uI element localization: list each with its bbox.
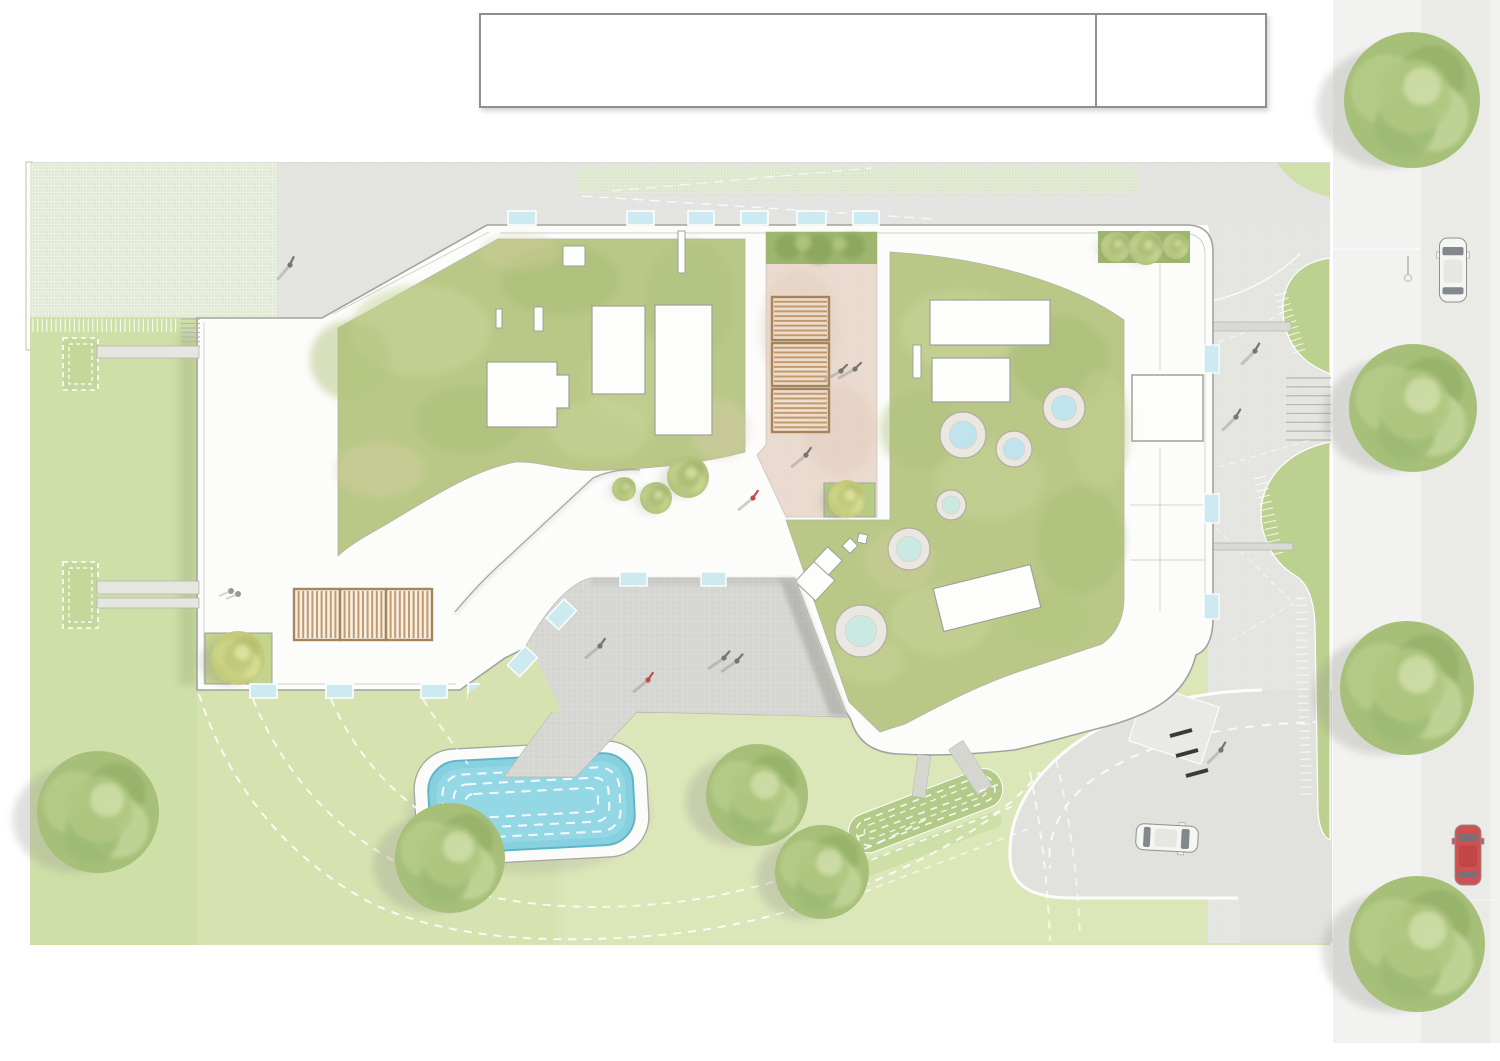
skylight (250, 684, 277, 698)
planter-bridge (97, 598, 199, 608)
skylight (326, 684, 353, 698)
skylight (1204, 345, 1219, 373)
lawn-planter-bed (63, 338, 98, 390)
upper-walk-green-band-pavers (578, 166, 1138, 194)
roof-planting-texture (1035, 485, 1125, 595)
hedge-tree (1144, 240, 1154, 250)
car-red-street (1452, 825, 1484, 885)
hedge-tree (1174, 240, 1181, 247)
hedge-shrub (795, 235, 811, 251)
title-block-main-panel (481, 15, 1097, 106)
hedge-shrub (833, 237, 847, 251)
deck-tree (654, 490, 663, 499)
round-skylight (942, 496, 960, 514)
skylight (627, 211, 654, 225)
title-block (479, 13, 1267, 108)
planter-bridge (97, 346, 199, 358)
scene-root (13, 0, 1500, 1043)
hedge-tree (1114, 240, 1122, 248)
roof-planting-texture (550, 400, 650, 460)
roof-planting-texture (310, 320, 390, 400)
pergola (772, 389, 829, 432)
planter-shrub (845, 490, 856, 501)
skylight (853, 211, 879, 225)
rooftop-volume (932, 358, 1010, 402)
round-skylight (1003, 438, 1025, 460)
lawn-tree (443, 832, 474, 863)
rooftop-volume (930, 300, 1050, 345)
planter-shrub (234, 645, 249, 660)
roof-planting-texture (335, 442, 425, 498)
round-skylight (949, 421, 977, 449)
deck-tree (685, 467, 697, 479)
car-white-street (1437, 238, 1470, 302)
site-plan (0, 0, 1500, 1061)
lawn-tree (816, 849, 842, 875)
round-skylight (896, 536, 921, 561)
skylight (797, 211, 826, 225)
roof-planting-texture (1070, 370, 1130, 490)
pergola (772, 343, 829, 386)
lawn-tree (90, 783, 124, 817)
roof-vent (496, 309, 502, 328)
roof-planting-texture (480, 234, 560, 270)
car-white-driveway (1135, 820, 1199, 855)
street-tree (1398, 656, 1436, 694)
roof-vent (913, 345, 921, 378)
skylight (701, 572, 726, 586)
skylight-box-tilted (857, 533, 868, 544)
round-skylight (1051, 395, 1076, 420)
layer-roof-terrace (757, 232, 877, 518)
grid-plaza-pavers (30, 163, 277, 318)
garden-wall (1207, 543, 1293, 550)
rooftop-volume (487, 362, 569, 427)
building-west-shadow (179, 333, 197, 685)
rooftop-volume (592, 306, 645, 394)
street-tree (1405, 377, 1441, 413)
skylight (1204, 594, 1219, 619)
skylight (741, 211, 768, 225)
title-block-revision-panel (1097, 15, 1265, 106)
lawn-tree (750, 771, 779, 800)
rooftop-volume (563, 246, 585, 266)
skylight (508, 211, 536, 225)
pergola (772, 297, 829, 340)
rooftop-volume (655, 305, 712, 435)
roof-vent (678, 231, 685, 273)
lawn-planter-bed (63, 562, 98, 628)
deck-tree (622, 483, 629, 490)
planter-bridge (97, 581, 199, 594)
street-tree (1408, 911, 1446, 949)
roof-vent (534, 307, 543, 331)
street-tree (1403, 67, 1441, 105)
round-skylight (845, 615, 876, 646)
garden-wall (1207, 322, 1291, 331)
entrance-volume (1132, 375, 1203, 441)
skylight (620, 572, 647, 586)
skylight (421, 684, 447, 698)
skylight (1204, 494, 1219, 523)
drawing-sheet (0, 0, 1500, 1061)
street-far-edge (1490, 0, 1500, 1043)
skylight (688, 211, 714, 225)
